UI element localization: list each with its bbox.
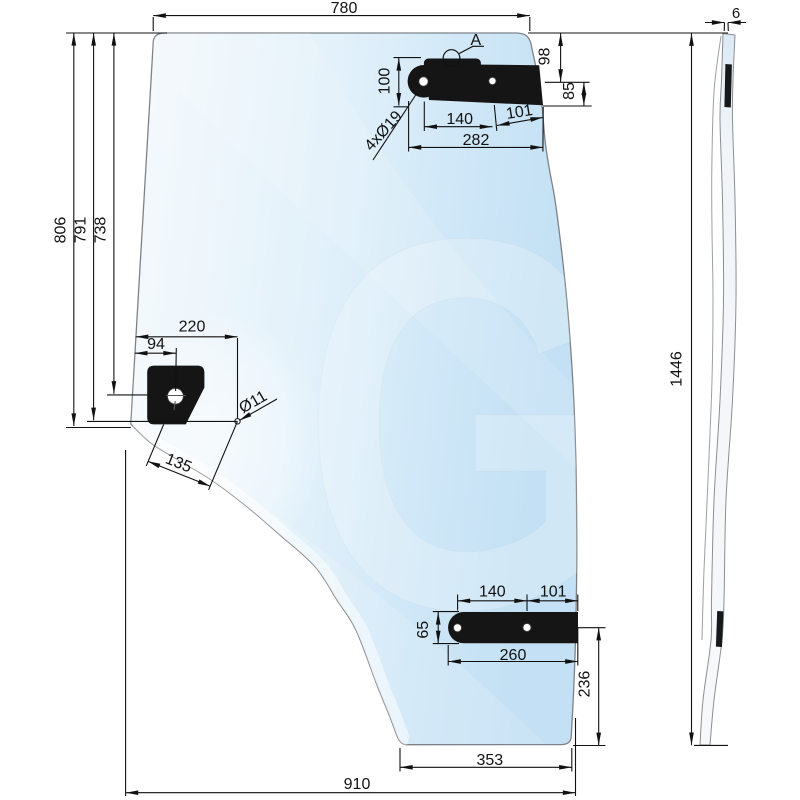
svg-text:910: 910	[344, 776, 371, 793]
svg-text:220: 220	[179, 319, 206, 336]
svg-text:140: 140	[479, 584, 506, 601]
svg-text:85: 85	[561, 82, 578, 100]
svg-text:140: 140	[446, 111, 473, 128]
svg-text:236: 236	[576, 671, 593, 698]
svg-text:65: 65	[415, 621, 432, 639]
svg-text:6: 6	[732, 5, 740, 22]
svg-text:780: 780	[331, 0, 358, 17]
svg-text:94: 94	[147, 336, 165, 353]
svg-text:A: A	[470, 32, 481, 49]
svg-text:101: 101	[540, 584, 567, 601]
svg-text:791: 791	[73, 217, 90, 244]
svg-text:353: 353	[476, 752, 503, 769]
svg-text:1446: 1446	[669, 351, 686, 387]
svg-text:98: 98	[536, 48, 553, 66]
svg-text:100: 100	[377, 68, 394, 95]
svg-text:738: 738	[93, 217, 110, 244]
svg-text:806: 806	[53, 217, 70, 244]
svg-text:260: 260	[500, 647, 527, 664]
svg-text:282: 282	[463, 132, 490, 149]
